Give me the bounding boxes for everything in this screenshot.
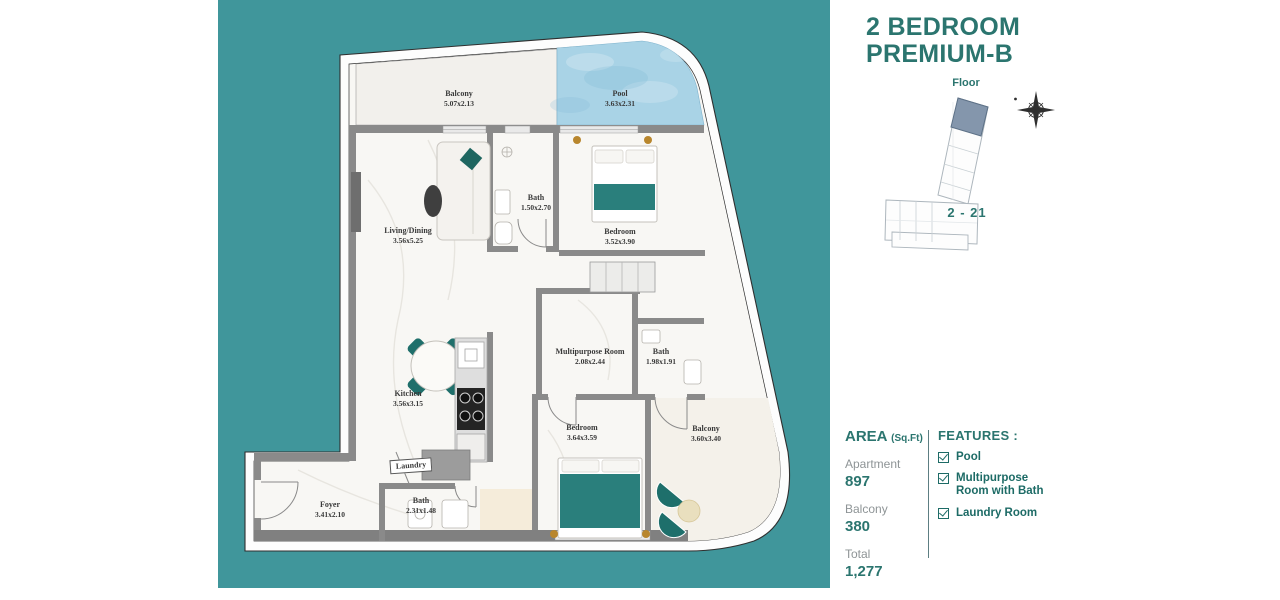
area-item-balcony: Balcony 380 bbox=[845, 502, 925, 535]
room-label-bath3: Bath 2.31x1.48 bbox=[406, 496, 436, 516]
area-heading: AREA (Sq.Ft) bbox=[845, 428, 925, 445]
room-label-bath1: Bath 1.50x2.70 bbox=[521, 193, 551, 213]
sofa-icon bbox=[437, 142, 490, 240]
floor-plan bbox=[218, 0, 830, 588]
room-label-bedroom2: Bedroom 3.64x3.59 bbox=[566, 423, 597, 443]
room-label-laundry: Laundry bbox=[389, 457, 432, 474]
room-label-balcony-top: Balcony 5.07x2.13 bbox=[444, 89, 474, 109]
room-label-living: Living/Dining 3.56x5.25 bbox=[384, 226, 432, 246]
room-label-bath2: Bath 1.98x1.91 bbox=[646, 347, 676, 367]
feature-item-laundry: Laundry Room bbox=[938, 507, 1063, 520]
coffee-table-icon bbox=[424, 185, 442, 217]
features-section: FEATURES : Pool Multipurpose Room with B… bbox=[938, 428, 1063, 520]
brochure-page: Balcony 5.07x2.13 Pool 3.63x2.31 Living/… bbox=[0, 0, 1280, 600]
building-locator bbox=[880, 92, 1004, 254]
room-label-multipurpose: Multipurpose Room 2.08x2.44 bbox=[555, 347, 624, 367]
room-label-pool: Pool 3.63x2.31 bbox=[605, 89, 635, 109]
room-label-foyer: Foyer 3.41x2.10 bbox=[315, 500, 345, 520]
tv-unit-icon bbox=[351, 172, 361, 232]
compass-icon bbox=[1012, 88, 1060, 132]
floor-label: Floor bbox=[940, 77, 992, 89]
bed-icon-bedroom2 bbox=[550, 458, 650, 538]
kitchen-counter-icon bbox=[455, 338, 487, 462]
checkbox-checked-icon bbox=[938, 452, 949, 463]
area-item-apartment: Apartment 897 bbox=[845, 457, 925, 490]
area-section: AREA (Sq.Ft) Apartment 897 Balcony 380 T… bbox=[845, 428, 925, 580]
room-label-balcony2: Balcony 3.60x3.40 bbox=[691, 424, 721, 444]
area-item-total: Total 1,277 bbox=[845, 547, 925, 580]
room-label-bedroom1: Bedroom 3.52x3.90 bbox=[604, 227, 635, 247]
hall-floor bbox=[480, 489, 535, 535]
feature-item-multipurpose: Multipurpose Room with Bath bbox=[938, 472, 1063, 498]
checkbox-checked-icon bbox=[938, 473, 949, 484]
room-label-kitchen: Kitchen 3.56x3.15 bbox=[393, 389, 423, 409]
wardrobe-icon bbox=[590, 262, 655, 292]
page-title: 2 BEDROOM PREMIUM-B bbox=[866, 14, 1020, 68]
floor-range: 2 - 21 bbox=[941, 205, 993, 220]
vertical-divider bbox=[928, 430, 929, 558]
feature-item-pool: Pool bbox=[938, 451, 1063, 464]
checkbox-checked-icon bbox=[938, 508, 949, 519]
features-heading: FEATURES : bbox=[938, 428, 1063, 443]
